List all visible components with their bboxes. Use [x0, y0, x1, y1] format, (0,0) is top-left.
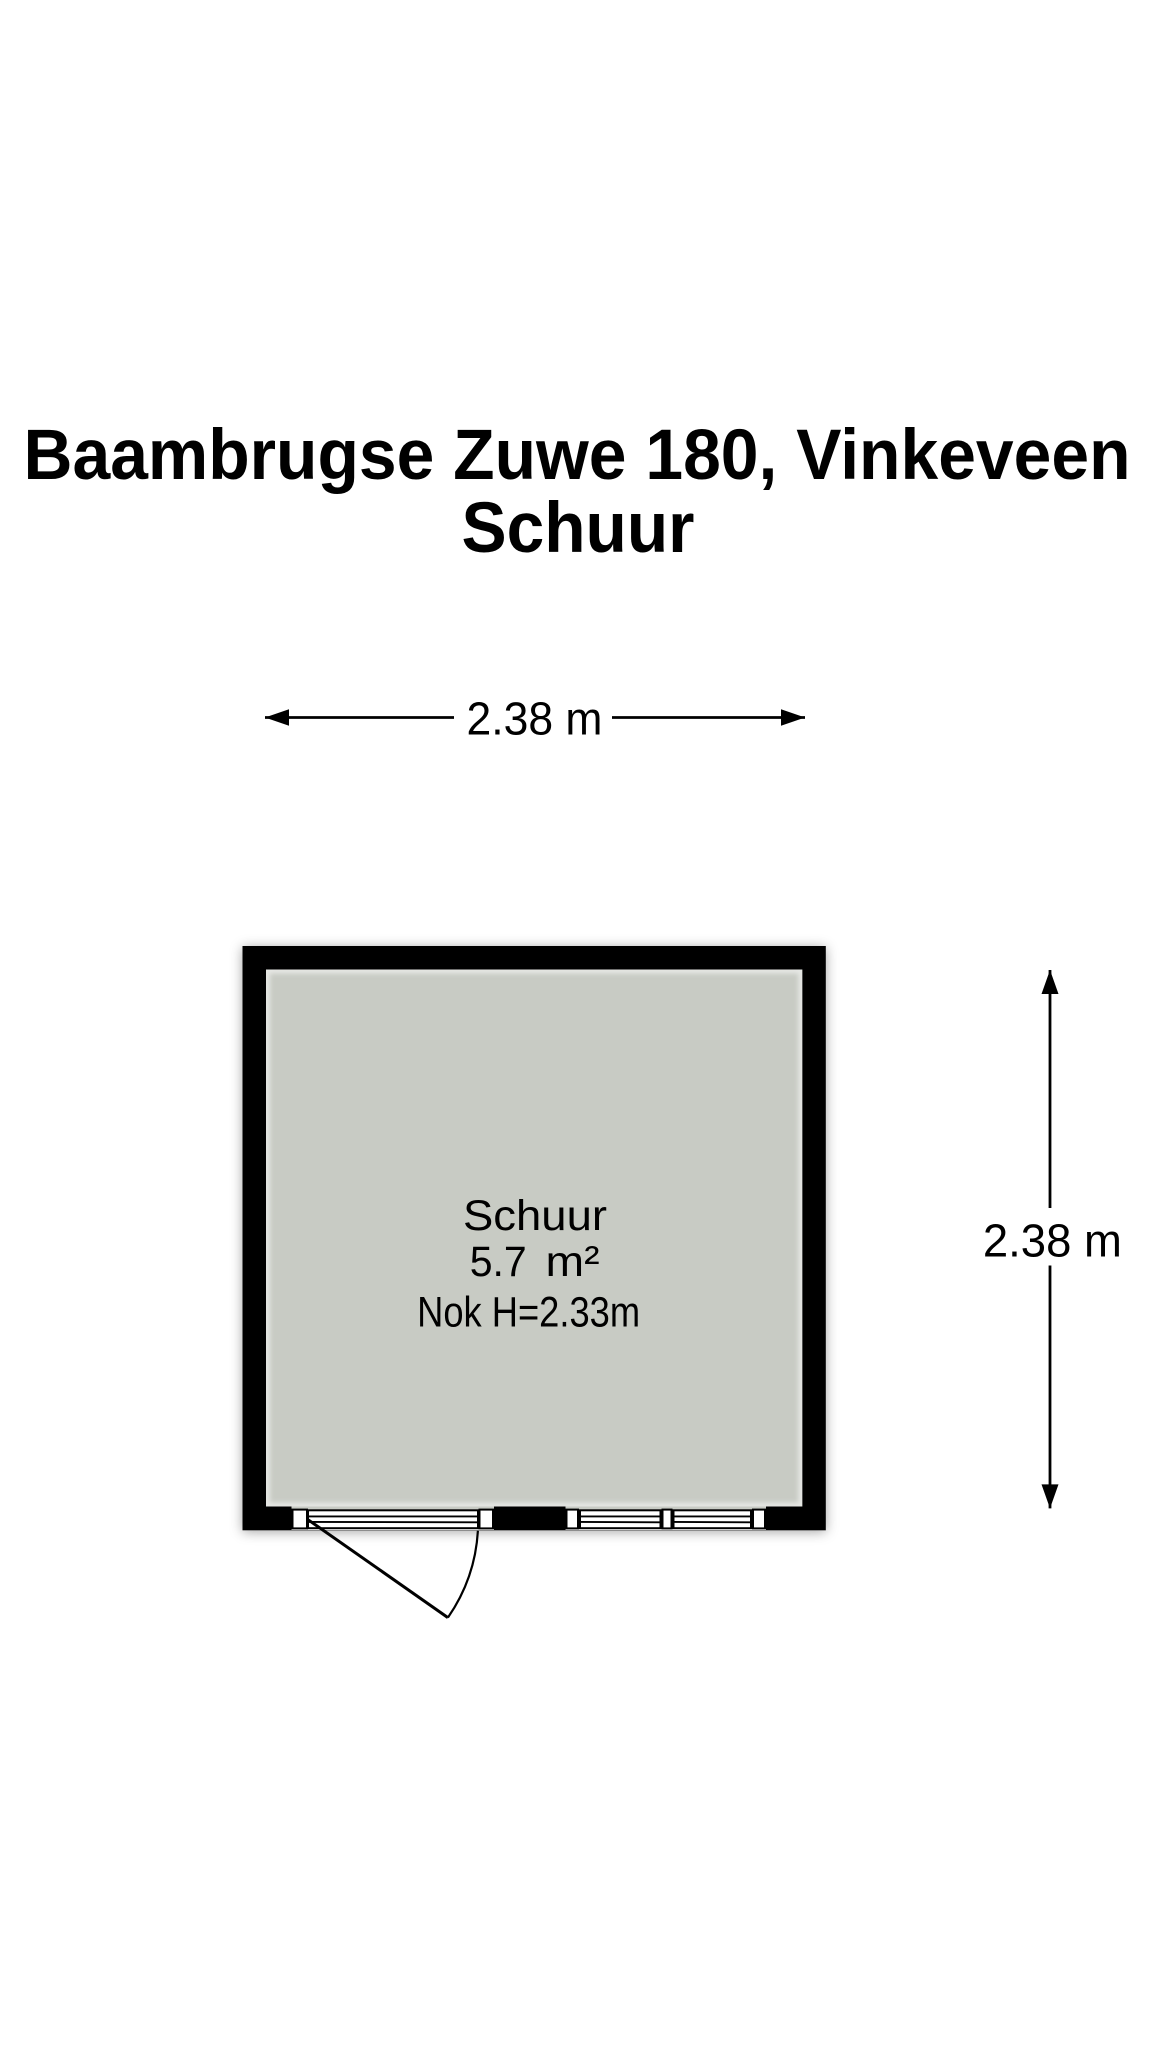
svg-text:2.38 m: 2.38 m [467, 693, 603, 745]
svg-text:Nok H=2.33m: Nok H=2.33m [417, 1289, 640, 1337]
svg-text:Baambrugse Zuwe 180, Vinkeveen: Baambrugse Zuwe 180, Vinkeveen [24, 416, 1131, 495]
svg-text:m²: m² [546, 1238, 600, 1286]
svg-text:2.38 m: 2.38 m [983, 1215, 1122, 1267]
svg-text:Schuur: Schuur [463, 1192, 607, 1240]
svg-text:Schuur: Schuur [462, 489, 695, 568]
svg-text:5.7: 5.7 [470, 1238, 527, 1286]
